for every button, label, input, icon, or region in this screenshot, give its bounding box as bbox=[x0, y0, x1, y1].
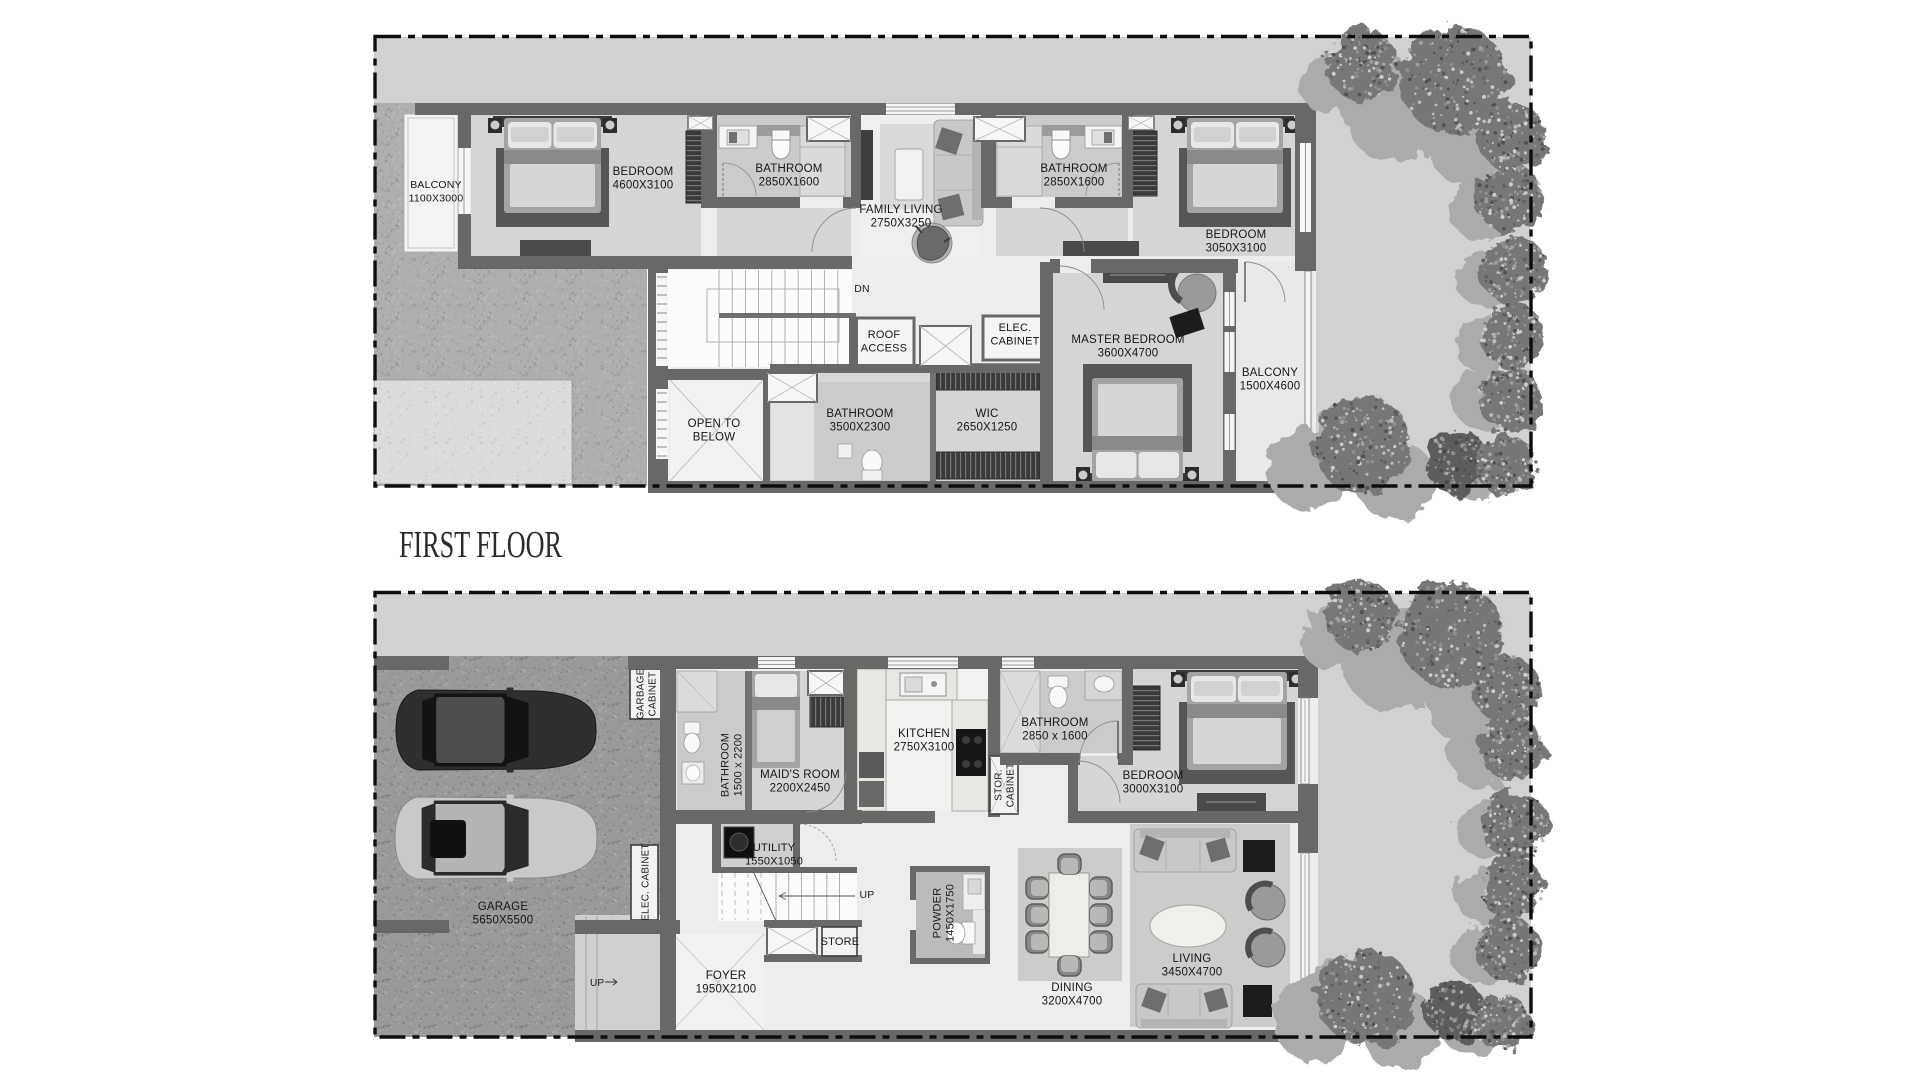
svg-text:STOR.CABINET: STOR.CABINET bbox=[994, 763, 1017, 808]
svg-text:KITCHEN2750X3100: KITCHEN2750X3100 bbox=[894, 728, 955, 754]
svg-text:BATHROOM3500X2300: BATHROOM3500X2300 bbox=[826, 408, 893, 434]
svg-text:UTILITY1550X1050: UTILITY1550X1050 bbox=[745, 842, 803, 868]
svg-text:UP: UP bbox=[590, 978, 604, 989]
svg-text:BEDROOM3000X3100: BEDROOM3000X3100 bbox=[1123, 770, 1184, 796]
svg-text:MAID'S ROOM2200X2450: MAID'S ROOM2200X2450 bbox=[760, 769, 840, 795]
svg-text:ELEC. CABINET: ELEC. CABINET bbox=[641, 843, 652, 921]
svg-text:GARAGE5650X5500: GARAGE5650X5500 bbox=[473, 901, 534, 927]
svg-text:BATHROOM2850X1600: BATHROOM2850X1600 bbox=[755, 163, 822, 189]
svg-text:BATHROOM1500 x 2200: BATHROOM1500 x 2200 bbox=[719, 733, 744, 797]
svg-text:POWDER1450X1750: POWDER1450X1750 bbox=[931, 884, 956, 942]
svg-text:DN: DN bbox=[854, 283, 870, 295]
svg-text:BALCONY1500X4600: BALCONY1500X4600 bbox=[1240, 367, 1301, 393]
svg-text:GARBAGECABINET: GARBAGECABINET bbox=[636, 668, 659, 719]
svg-text:BEDROOM4600X3100: BEDROOM4600X3100 bbox=[613, 166, 674, 192]
svg-text:FAMILY LIVING2750X3250: FAMILY LIVING2750X3250 bbox=[859, 204, 942, 230]
svg-text:STORE: STORE bbox=[821, 936, 860, 948]
svg-text:FIRST FLOOR: FIRST FLOOR bbox=[399, 524, 562, 566]
svg-text:BEDROOM3050X3100: BEDROOM3050X3100 bbox=[1206, 229, 1267, 255]
svg-text:OPEN TOBELOW: OPEN TOBELOW bbox=[688, 418, 741, 444]
svg-text:BATHROOM2850X1600: BATHROOM2850X1600 bbox=[1040, 163, 1107, 189]
svg-text:UP: UP bbox=[860, 889, 875, 901]
svg-text:ROOFACCESS: ROOFACCESS bbox=[861, 329, 907, 355]
svg-text:BATHROOM2850 x 1600: BATHROOM2850 x 1600 bbox=[1021, 717, 1088, 743]
svg-text:BALCONY1100X3000: BALCONY1100X3000 bbox=[409, 179, 464, 205]
